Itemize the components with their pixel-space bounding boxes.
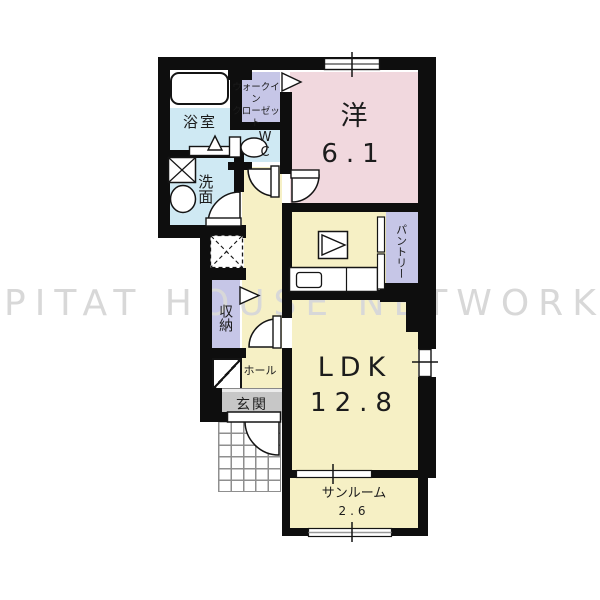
wall <box>228 68 252 80</box>
wall <box>418 377 436 478</box>
walk-in-closet-label-line1: ウォークイン <box>228 82 284 106</box>
corridor-hall-area <box>242 167 282 392</box>
wall <box>168 150 234 158</box>
ldk-label: LDK <box>292 352 418 383</box>
pantry-label: パントリー <box>394 215 407 287</box>
sunroom-label: サンルーム <box>290 487 418 502</box>
bathtub-area <box>168 70 232 108</box>
wall <box>282 203 436 212</box>
wall <box>418 57 436 349</box>
washroom-label: 洗面 <box>196 167 213 211</box>
wall <box>282 211 292 318</box>
wc-label-line2: C <box>254 146 276 161</box>
floorplan: PITAT HOUSE NETWORK <box>0 0 600 600</box>
western-room-area <box>290 72 418 203</box>
entrance-label: 玄関 <box>222 397 282 413</box>
wall <box>228 162 252 170</box>
window-ldk-east <box>419 350 431 377</box>
wall <box>158 57 436 70</box>
wall <box>200 348 246 358</box>
wall <box>158 57 170 238</box>
wall <box>234 150 244 192</box>
western-room-size: 6.1 <box>290 140 418 170</box>
wall-pillar <box>406 300 420 332</box>
wc-label: W C <box>254 131 276 161</box>
ldk-size: 12.8 <box>292 389 418 419</box>
wall <box>200 268 246 280</box>
wall <box>282 528 428 536</box>
western-room-label: 洋 <box>290 101 418 132</box>
sunroom-size: 2.6 <box>290 505 418 519</box>
wall <box>288 290 390 300</box>
bathroom-label: 浴室 <box>168 114 232 131</box>
sunroom-area <box>290 477 418 528</box>
wc-label-line1: W <box>254 131 276 146</box>
wall <box>212 412 228 422</box>
storage-label: 収納 <box>217 293 233 343</box>
hall-label: ホール <box>236 365 284 378</box>
walk-in-closet-label: ウォークイン クローゼット <box>228 82 284 130</box>
entrance-porch-tiles <box>218 421 281 492</box>
walk-in-closet-label-line2: クローゼット <box>228 106 284 130</box>
wall <box>282 470 436 478</box>
